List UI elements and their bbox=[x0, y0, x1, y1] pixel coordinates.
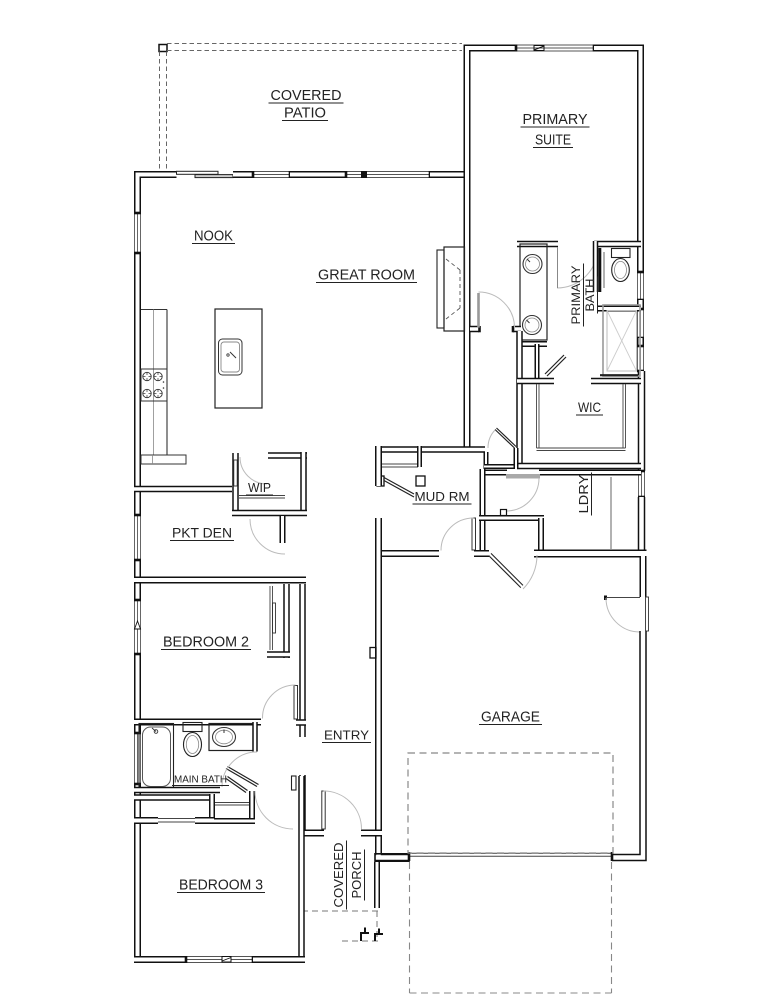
svg-text:COVERED: COVERED bbox=[271, 87, 342, 104]
svg-text:PATIO: PATIO bbox=[284, 105, 326, 122]
svg-text:BEDROOM 3: BEDROOM 3 bbox=[179, 878, 263, 894]
svg-text:PRIMARY: PRIMARY bbox=[523, 111, 588, 128]
svg-text:MUD RM: MUD RM bbox=[415, 489, 470, 504]
svg-text:PKT DEN: PKT DEN bbox=[172, 526, 232, 541]
svg-text:LDRY: LDRY bbox=[576, 474, 591, 513]
svg-text:WIP: WIP bbox=[248, 480, 271, 495]
svg-text:SUITE: SUITE bbox=[535, 132, 571, 149]
svg-text:WIC: WIC bbox=[578, 399, 601, 415]
svg-text:BATH: BATH bbox=[583, 279, 597, 312]
svg-text:PRIMARY: PRIMARY bbox=[569, 266, 583, 325]
svg-text:NOOK: NOOK bbox=[194, 228, 233, 245]
svg-text:GARAGE: GARAGE bbox=[481, 710, 540, 726]
svg-text:COVERED: COVERED bbox=[332, 843, 346, 908]
svg-text:ENTRY: ENTRY bbox=[324, 728, 369, 743]
svg-text:PORCH: PORCH bbox=[350, 852, 364, 899]
svg-text:MAIN BATH: MAIN BATH bbox=[174, 775, 227, 786]
svg-text:GREAT ROOM: GREAT ROOM bbox=[318, 267, 415, 284]
svg-text:BEDROOM 2: BEDROOM 2 bbox=[163, 635, 249, 651]
